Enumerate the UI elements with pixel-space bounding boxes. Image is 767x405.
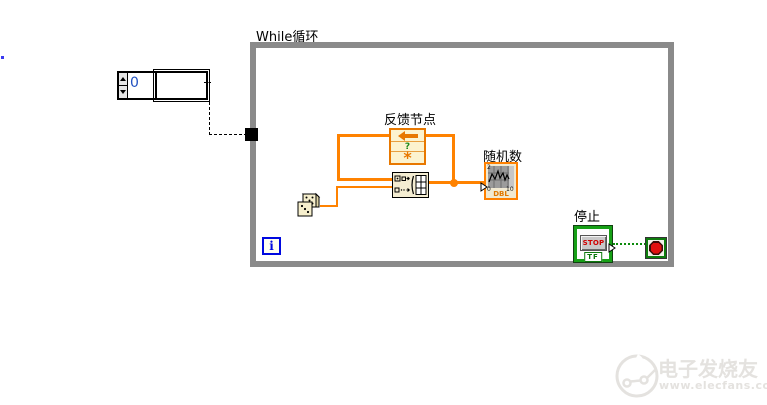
chart-input-arrow-icon <box>480 177 488 196</box>
broken-wire-segment[interactable] <box>209 82 210 135</box>
broken-wire-segment[interactable] <box>209 134 247 135</box>
feedback-initializer-cell: * <box>391 152 424 163</box>
boolean-wire[interactable] <box>613 243 646 245</box>
dice-icon <box>296 192 323 220</box>
waveform-chart-terminal[interactable]: 2 0 10 DBL <box>484 162 518 200</box>
decrement-arrow-icon[interactable] <box>119 86 127 98</box>
labview-block-diagram: 0 While循环 反馈节点 ? * <box>0 0 767 405</box>
iteration-i-label: i <box>269 240 274 252</box>
wire-junction-dot[interactable] <box>450 179 458 187</box>
feedback-left-arrow-icon <box>391 130 424 142</box>
numeric-control-terminal[interactable]: 0 <box>117 71 157 100</box>
array-wire-segment[interactable] <box>452 134 455 184</box>
numeric-control-value: 0 <box>128 73 155 98</box>
array-wire-segment[interactable] <box>337 178 393 181</box>
array-wire-segment[interactable] <box>337 134 390 137</box>
build-array-node[interactable] <box>392 172 429 202</box>
watermark-url: www.elecfans.com <box>659 379 767 392</box>
elecfans-logo-icon <box>613 352 661 404</box>
array-wire-segment[interactable] <box>426 134 455 137</box>
chart-dbl-type-label: DBL <box>486 190 516 198</box>
loop-iteration-terminal[interactable]: i <box>262 237 281 255</box>
array-wire-segment[interactable] <box>337 134 340 181</box>
build-array-icon <box>392 172 429 198</box>
loop-tunnel[interactable] <box>245 128 258 141</box>
stop-button-terminal[interactable]: STOP TF <box>574 226 612 262</box>
feedback-node-label: 反馈节点 <box>384 109 436 128</box>
watermark-title: 电子发烧友 <box>658 353 758 382</box>
scalar-wire-segment[interactable] <box>336 186 393 188</box>
stop-control-label: 停止 <box>574 206 600 225</box>
control-display-box[interactable] <box>155 71 208 100</box>
boolean-tf-type-label: TF <box>584 252 602 262</box>
stray-dot <box>1 56 4 59</box>
chart-ytick-top: 2 <box>487 165 491 171</box>
increment-arrow-icon[interactable] <box>119 73 127 86</box>
stop-output-arrow-icon <box>608 238 616 257</box>
stop-sign-icon <box>649 241 663 255</box>
stop-button-text: STOP <box>583 239 605 247</box>
stop-button-icon: STOP <box>580 235 607 251</box>
scalar-wire-segment[interactable] <box>336 187 338 207</box>
random-number-dice-node[interactable] <box>296 192 323 224</box>
increment-decrement-icon[interactable] <box>119 73 128 98</box>
loop-condition-terminal[interactable] <box>646 238 666 258</box>
chart-plot-icon <box>488 166 514 188</box>
feedback-node[interactable]: ? * <box>389 128 426 165</box>
